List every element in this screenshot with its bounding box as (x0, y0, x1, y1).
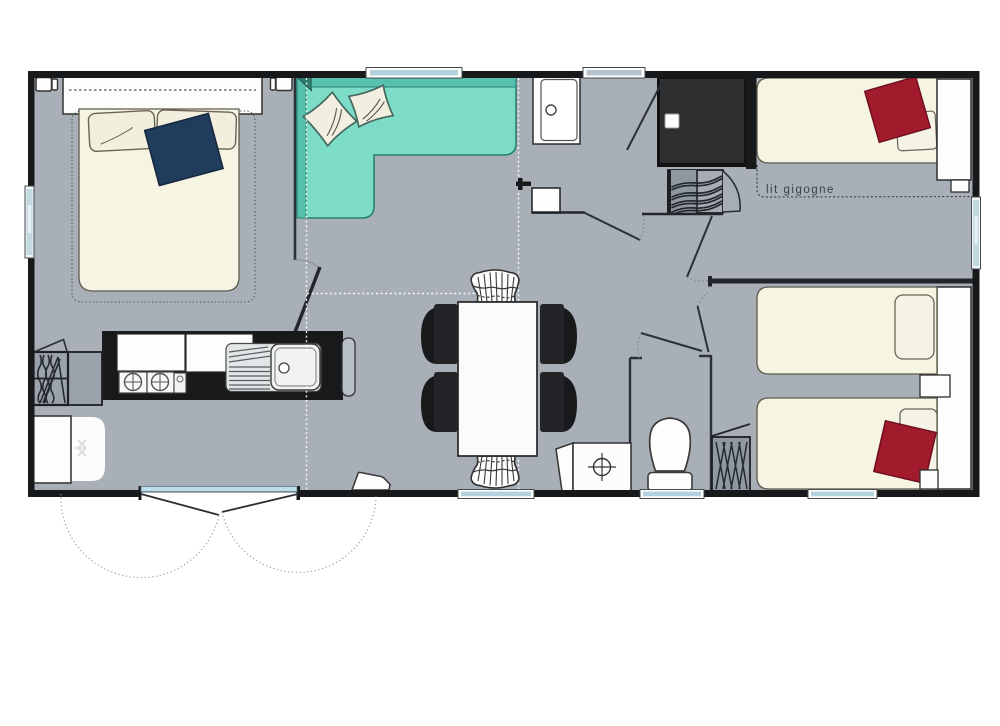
svg-text:lit gigogne: lit gigogne (766, 184, 835, 196)
